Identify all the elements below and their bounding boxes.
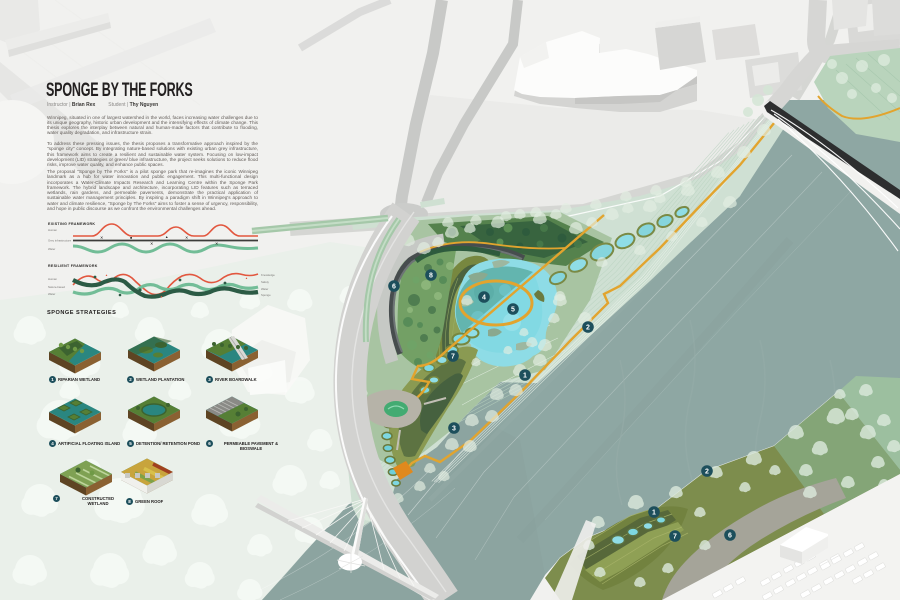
svg-text:4: 4 bbox=[482, 295, 486, 302]
svg-text:2: 2 bbox=[586, 325, 590, 332]
svg-text:6: 6 bbox=[392, 284, 396, 291]
svg-text:7: 7 bbox=[451, 354, 455, 361]
svg-text:2: 2 bbox=[705, 469, 709, 476]
svg-text:8: 8 bbox=[429, 273, 433, 280]
svg-text:7: 7 bbox=[673, 534, 677, 541]
svg-text:1: 1 bbox=[652, 510, 656, 517]
svg-text:3: 3 bbox=[452, 426, 456, 433]
svg-text:6: 6 bbox=[728, 533, 732, 540]
svg-text:1: 1 bbox=[523, 373, 527, 380]
svg-text:5: 5 bbox=[511, 307, 515, 314]
